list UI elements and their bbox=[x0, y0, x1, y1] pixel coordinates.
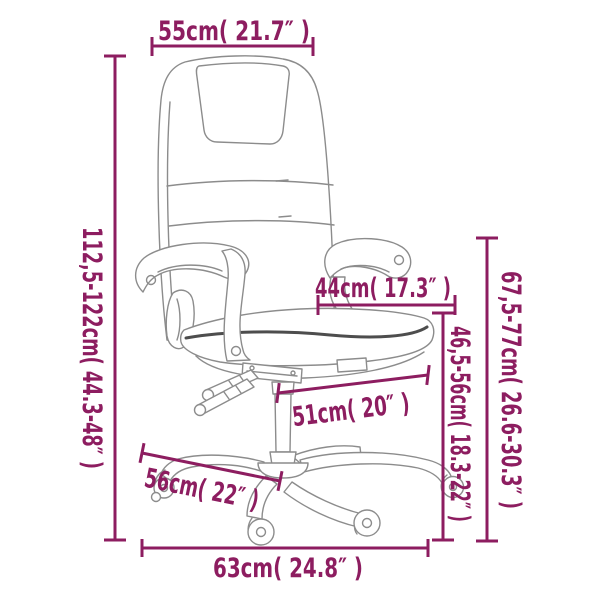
dimension-label-seat-depth-lower: 51cm( 20″ ) bbox=[291, 388, 412, 433]
chair-seat bbox=[181, 308, 434, 378]
diagram-canvas: 55cm( 21.7″ ) 112,5-122cm( 44.3-48″ ) 44… bbox=[0, 0, 600, 600]
chair-headrest bbox=[196, 63, 289, 144]
dimension-label-seat-to-floor: 46,5-56cm( 18.3-22″ ) bbox=[444, 326, 475, 522]
dimension-label-seat-depth-upper: 44cm( 17.3″ ) bbox=[315, 273, 451, 304]
dimension-line-backrest-to-floor bbox=[476, 238, 498, 541]
dimension-label-overall-height: 112,5-122cm( 44.3-48″ ) bbox=[76, 227, 107, 469]
chair-levers bbox=[195, 370, 259, 416]
dimension-label-top-width: 55cm( 21.7″ ) bbox=[158, 16, 310, 47]
dimension-label-base-depth: 56cm( 22″ ) bbox=[142, 463, 262, 517]
dimension-label-base-width: 63cm( 24.8″ ) bbox=[213, 553, 363, 584]
dimension-label-backrest-to-floor: 67,5-77cm( 26.6-30.3″ ) bbox=[495, 271, 526, 509]
chair-dimension-diagram: 55cm( 21.7″ ) 112,5-122cm( 44.3-48″ ) 44… bbox=[0, 0, 600, 600]
